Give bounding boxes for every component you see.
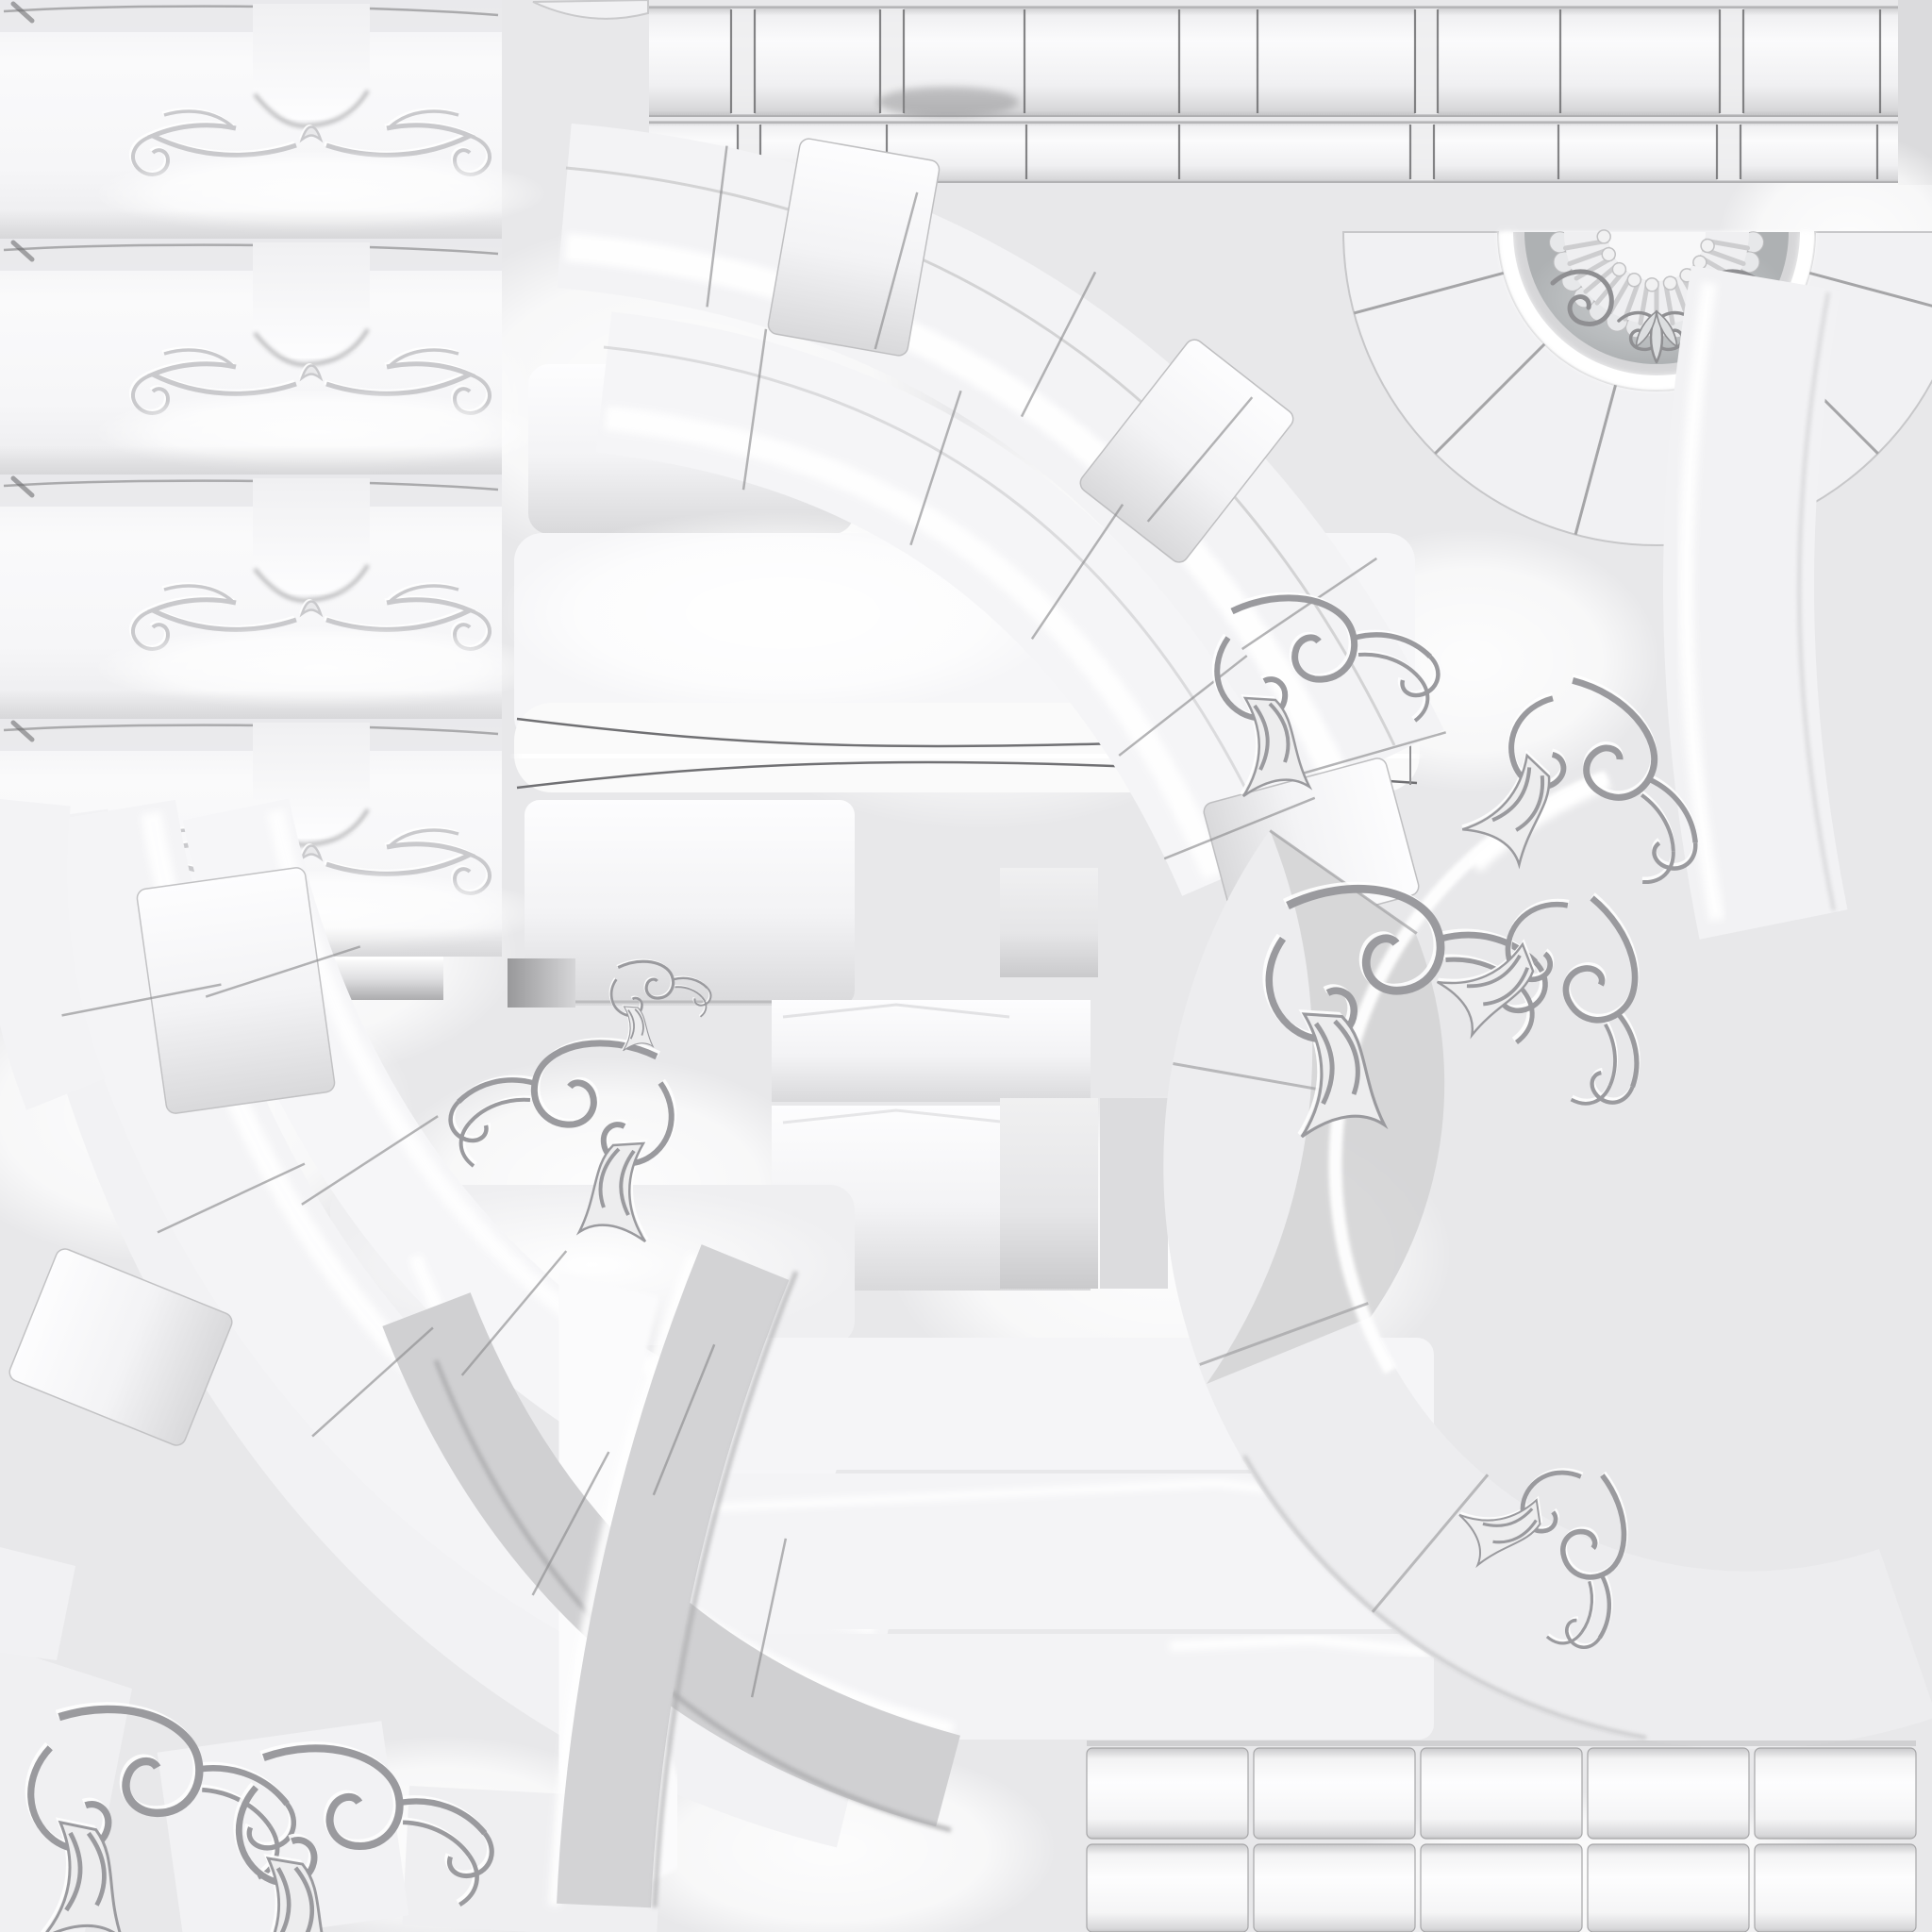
molding-tab: [253, 4, 370, 120]
molding-strip-row: [0, 475, 547, 719]
pipe-band-body: [649, 6, 1898, 117]
tile-segment: [1421, 1748, 1582, 1839]
molding-top-shade: [0, 0, 502, 32]
atlas-image: [0, 0, 1932, 1932]
molding-bottom-shade: [0, 691, 502, 719]
tile-segment: [1087, 1844, 1248, 1932]
molding-top-shade: [0, 719, 502, 751]
molding-strip-row: [0, 0, 547, 239]
molding-tab: [253, 242, 370, 358]
molding-tab: [253, 478, 370, 594]
gray-cylinder-chip: [1000, 868, 1098, 977]
molding-top-shade: [0, 475, 502, 507]
molding-top-shade: [0, 239, 502, 271]
dark-gradient-chip: [508, 958, 575, 1008]
pipe-collar: [1720, 8, 1743, 114]
pipe-band: [649, 6, 1898, 117]
right-vertical-band: [1686, 278, 1834, 924]
cylinder-band: [772, 1000, 1091, 1102]
molding-bottom-shade: [0, 446, 502, 475]
pipe-dark-blemish: [877, 87, 1019, 117]
tile-segment: [1421, 1844, 1582, 1932]
bead: [1645, 278, 1658, 291]
bead: [1602, 248, 1615, 261]
tile-segment: [1588, 1844, 1749, 1932]
pipe-collar: [731, 8, 755, 114]
molding-strip-row: [0, 239, 547, 475]
texture-atlas-canvas: [0, 0, 1932, 1932]
molding-bottom-shade: [0, 210, 502, 239]
bead: [1627, 274, 1641, 287]
gray-chip: [1100, 1098, 1168, 1289]
tile-segment: [1254, 1748, 1415, 1839]
bead: [1612, 263, 1625, 276]
tile-segment: [1755, 1844, 1916, 1932]
pipe-collar: [1415, 8, 1438, 114]
tile-segment: [1588, 1748, 1749, 1839]
gray-cylinder-chip: [1000, 1098, 1098, 1289]
bead: [1663, 276, 1676, 290]
bead: [1597, 230, 1610, 243]
pipe-collar: [1410, 124, 1434, 180]
tile-segment: [1087, 1748, 1248, 1839]
tile-grid-gap: [1087, 1740, 1916, 1746]
bead: [1701, 239, 1714, 252]
pipe-collar: [1717, 124, 1740, 180]
tile-segment: [1254, 1844, 1415, 1932]
tile-segment: [1755, 1748, 1916, 1839]
